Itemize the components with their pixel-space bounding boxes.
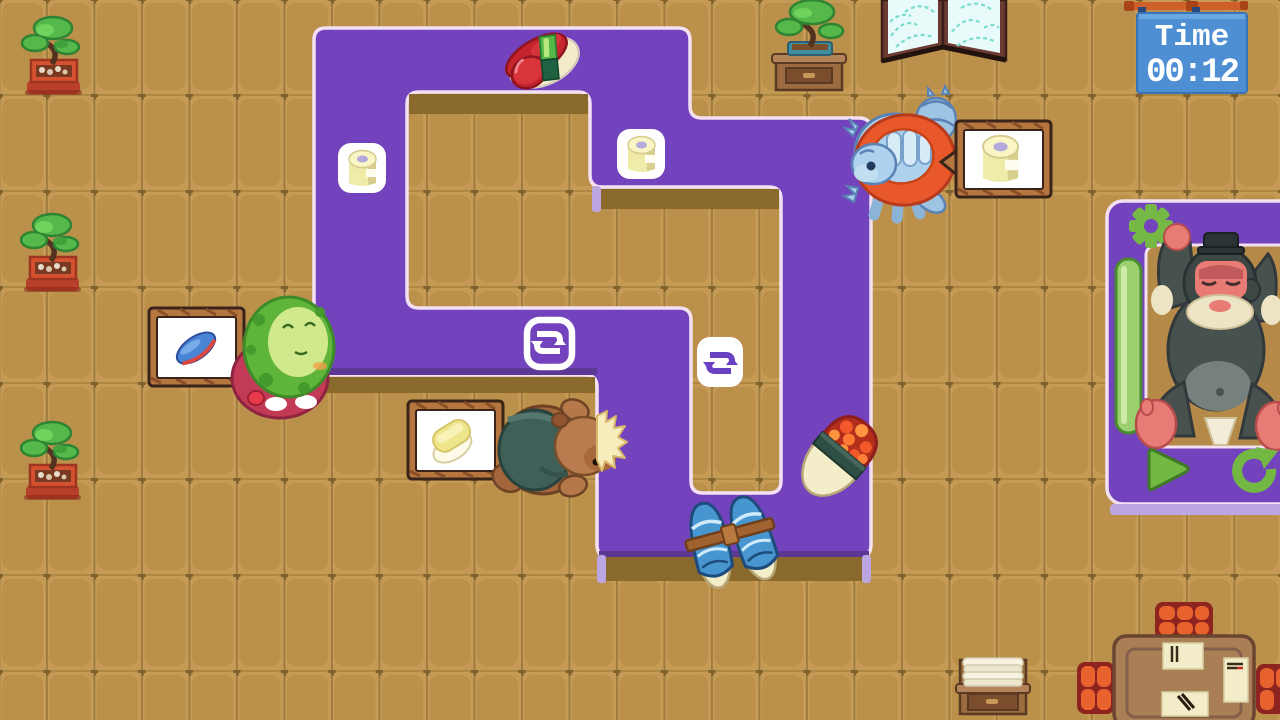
svg-text:00:12: 00:12 — [1146, 54, 1239, 92]
svg-text:Time: Time — [1155, 20, 1229, 55]
